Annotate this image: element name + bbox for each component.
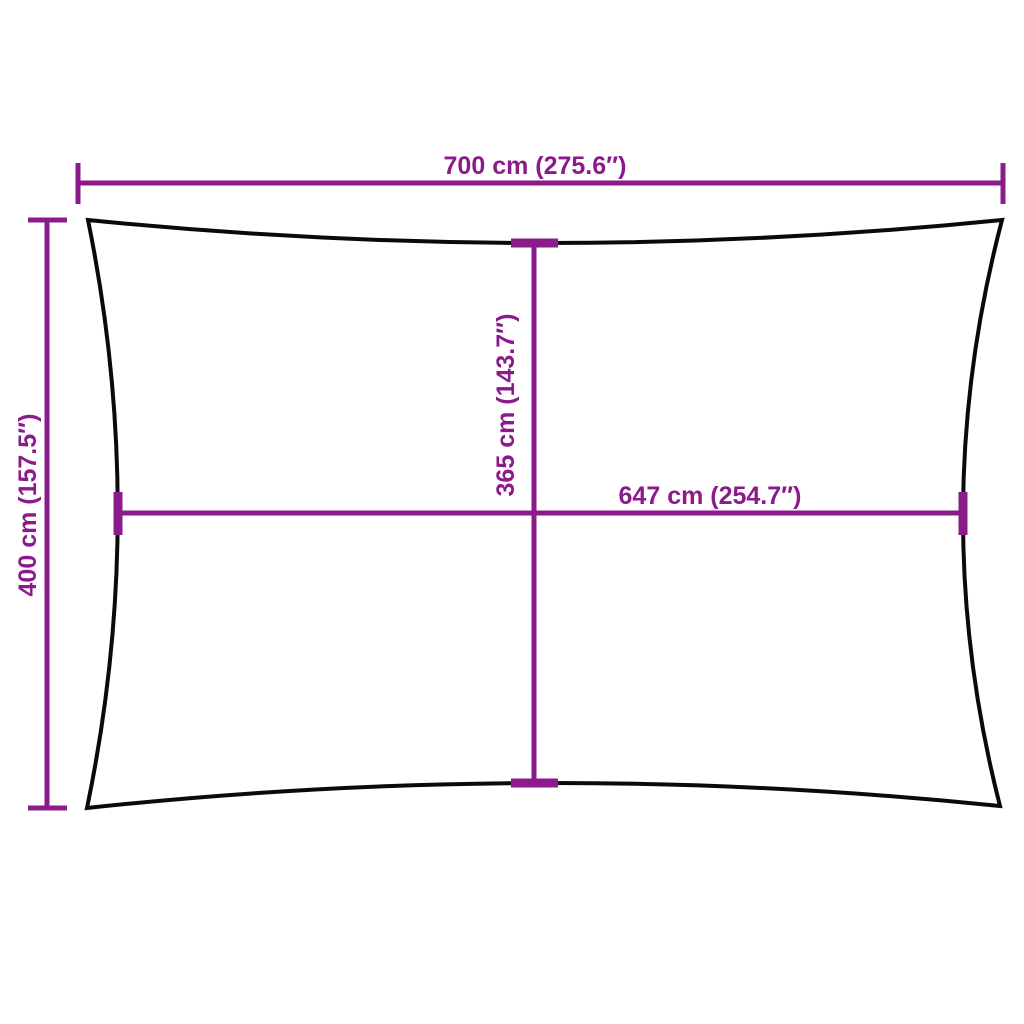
left-height-dimension: 400 cm (157.5″) xyxy=(14,220,67,808)
inner-height-label: 365 cm (143.7″) xyxy=(492,314,520,497)
inner-width-dimension: 647 cm (254.7″) xyxy=(118,482,963,535)
product-dimension-diagram: 700 cm (275.6″) 400 cm (157.5″) 365 cm (… xyxy=(0,0,1024,1024)
top-width-dimension: 700 cm (275.6″) xyxy=(78,152,1003,204)
inner-width-label: 647 cm (254.7″) xyxy=(619,482,802,510)
outer-height-label: 400 cm (157.5″) xyxy=(14,414,42,597)
outer-width-label: 700 cm (275.6″) xyxy=(444,152,627,180)
diagram-canvas: 700 cm (275.6″) 400 cm (157.5″) 365 cm (… xyxy=(0,0,1024,1024)
